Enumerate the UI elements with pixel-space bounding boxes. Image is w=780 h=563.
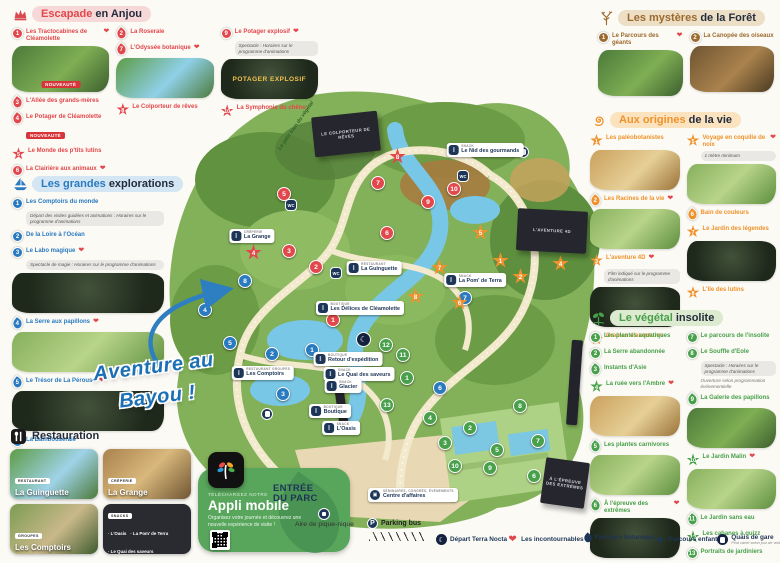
star-icon: ★ — [655, 534, 666, 545]
map-marker-red-2: 2 — [309, 260, 323, 274]
venue-icon: ∥ — [324, 423, 334, 433]
map-marker-green-2: 2 — [463, 421, 477, 435]
photo-thumbnail — [687, 469, 777, 509]
legend-column: 1Les Tractocabines de Cléamolette❤NOUVEA… — [12, 27, 109, 180]
venue-name: L'Oasis — [337, 427, 356, 433]
title-accent: Aux origines — [619, 114, 686, 126]
photo-thumbnail — [590, 150, 680, 190]
legend-column: 7Le parcours de l'insolite8Le Souffle d'… — [687, 331, 777, 563]
card-badge: GROUPES — [15, 533, 42, 539]
map-marker-orange-5: 5 — [472, 224, 489, 241]
venue-icon: ∥ — [231, 231, 241, 241]
restroom-icon: WC — [330, 267, 342, 279]
heart-icon: ❤ — [749, 452, 755, 460]
legend-entry-sub: Peut varier selon jour de visite — [731, 541, 780, 545]
section-title: Les grandesexplorations — [32, 176, 183, 192]
heart-icon: ❤ — [667, 194, 673, 202]
title-rest: explorations — [109, 178, 174, 190]
circle-marker: 2 — [12, 231, 23, 242]
leaf-marker: 5 — [588, 439, 603, 454]
restaurant-name: Les Comptoirs — [15, 543, 71, 552]
restaurant-card: SNACKS· L'Oasis· La Pom' de Terra· Le Qu… — [103, 504, 191, 554]
legend-item: 2La Canopée des oiseaux — [690, 31, 775, 92]
legend-item: 2Les Racines de la vie❤ — [590, 194, 680, 249]
legend-item-label: Le Potager de Cléamolette — [26, 112, 101, 121]
business-name: Centre d'affaires — [383, 494, 454, 500]
legend-item-label: Les paléobotanistes — [606, 133, 664, 142]
restaurant-card: CRÊPERIELa Grange — [103, 449, 191, 499]
legend-item-label: La Canopée des oiseaux — [704, 31, 774, 40]
circle-marker: 3 — [12, 247, 23, 258]
title-rest: en Anjou — [95, 8, 142, 20]
legend-column: 5Voyage en coquille de noix❤1 mètre mini… — [687, 133, 777, 303]
star-marker: 10 — [221, 104, 234, 117]
legend-item-label: À l'épreuve des extrêmes — [604, 499, 671, 515]
map-venue-label: ∥SNACKLe Nid des gourmands — [447, 143, 524, 157]
legend-item: 4La Serre aux papillons❤ — [12, 317, 164, 372]
heart-icon: ❤ — [507, 534, 518, 545]
new-badge: NOUVEAUTÉ — [41, 81, 80, 88]
legend-item: 8Le Colporteur de rêves — [116, 102, 213, 116]
star-marker: 5 — [687, 134, 700, 147]
section-title: Les mystèresde la Forêt — [618, 10, 765, 26]
title-accent: Escapade — [41, 8, 92, 20]
bus-parking-label: P Parking bus — [367, 518, 421, 529]
legend-item-label: Le Jardin des légendes — [703, 224, 769, 233]
photo-thumbnail: NOUVEAUTÉ — [12, 46, 109, 92]
venue-icon: ∥ — [311, 406, 321, 416]
legend-item: 5Voyage en coquille de noix❤1 mètre mini… — [687, 133, 777, 204]
legend-item-label: Portraits de jardiniers — [701, 547, 763, 556]
attraction-building: L'AVENTURE 4D — [516, 208, 588, 254]
title-rest: de la vie — [689, 114, 732, 126]
leaf-marker: 2 — [114, 26, 129, 41]
leaf-marker: 4 — [10, 111, 25, 126]
legend-item: 9La Galerie des papillons — [687, 393, 777, 448]
venue-name: Retour d'expédition — [328, 358, 378, 364]
legend-item: 7Le parcours de l'insolite — [687, 331, 777, 343]
snack-name: · L'Oasis — [108, 530, 126, 537]
venue-name: Le Nid des gourmands — [461, 149, 519, 155]
card-badge: SNACKS — [108, 513, 132, 519]
heart-icon: ❤ — [100, 164, 106, 172]
venue-icon: ∥ — [446, 275, 456, 285]
venue-icon: ∥ — [318, 303, 328, 313]
restroom-icon: WC — [457, 170, 469, 182]
map-venue-label: ∥RESTAURANTLa Guinguette — [347, 261, 402, 275]
title-accent: Les mystères — [627, 12, 697, 24]
legend-item: 2La Roseraie — [116, 27, 213, 39]
bare-tree-icon — [598, 10, 614, 26]
section-restauration: Restauration RESTAURANTLa GuinguetteCRÊP… — [10, 428, 194, 554]
picnic-area-label: Aire de pique-nique — [295, 508, 354, 528]
title-accent: Les grandes — [41, 178, 106, 190]
legend-entry-label: Les incontournables — [521, 536, 584, 543]
terra-nocta-icon: ☾ — [356, 332, 371, 347]
heart-icon: ❤ — [770, 133, 776, 141]
map-marker-red-6: 6 — [380, 226, 394, 240]
fork-knife-icon — [10, 428, 26, 444]
legend-item-label: Le Souffle d'Eole — [701, 347, 749, 356]
venue-icon: ∥ — [327, 381, 337, 391]
snack-name: · La Pom' de Terra — [130, 530, 168, 537]
legend-column: 2La Canopée des oiseaux — [690, 31, 775, 96]
legend-item: 6Bain de couleurs — [687, 208, 777, 220]
legend-item: 1Le Parcours des géants❤ — [598, 31, 683, 96]
map-marker-orange-1: 1 — [492, 252, 509, 269]
schedule-note: Spectacle : Horaires sur le programme d'… — [701, 361, 777, 376]
circle-marker: 7 — [687, 332, 698, 343]
schedule-note: 1 mètre minimum — [701, 151, 777, 161]
legend-entry-label: Parcours botanique — [595, 534, 655, 541]
map-marker-red-7: 7 — [371, 176, 385, 190]
business-center-label: ▣ SÉMINAIRES, CONGRÈS, ÉVÉNEMENTS Centre… — [368, 488, 458, 502]
legend-item: 8L'île des lutins — [687, 285, 777, 299]
venue-name: La Guinguette — [361, 267, 397, 273]
map-marker-green-11: 11 — [396, 348, 410, 362]
heart-icon: ❤ — [677, 31, 683, 39]
photo-thumbnail — [687, 164, 777, 204]
heart-icon: ❤ — [93, 317, 99, 325]
venue-icon: ∥ — [326, 369, 336, 379]
circle-marker: 8 — [687, 348, 698, 359]
legend-item-label: Le Monde des p'tits lutins — [28, 146, 101, 155]
app-kicker: TÉLÉCHARGEZ NOTRE — [208, 492, 268, 497]
legend-item: 9Le Potager explosif❤Spectacle : Horaire… — [221, 27, 318, 99]
attraction-building: LE COLPORTEUR DE RÊVES — [311, 111, 381, 158]
venue-name: La Pom' de Terra — [459, 279, 502, 285]
train-station-icon — [261, 408, 273, 420]
map-marker-blue-8: 8 — [238, 274, 252, 288]
map-marker-blue-5: 5 — [223, 336, 237, 350]
venue-name: Le Quai des saveurs — [338, 373, 390, 379]
legend-entry-label: Parcours enfant — [669, 536, 718, 543]
legend-item: 1Les Comptoirs du mondeDépart des visite… — [12, 197, 164, 226]
legend-item: 7Le Jardin des légendes — [687, 224, 777, 281]
legend-item: 5Les plantes carnivores — [590, 440, 680, 495]
legend-item-label: La Galerie des papillons — [701, 393, 770, 402]
map-venue-label: ∥BOUTIQUERetour d'expédition — [314, 352, 383, 366]
heart-icon: ❤ — [103, 27, 109, 35]
star-marker: 1 — [590, 134, 603, 147]
title-accent: Le végétal — [619, 312, 673, 324]
snack-name: · Le Quai des saveurs — [108, 548, 153, 554]
venue-name: La Grange — [244, 235, 271, 241]
circle-marker: 1 — [12, 198, 23, 209]
leaf-marker: 6 — [588, 498, 603, 513]
legend-item-label: Le parcours de l'insolite — [701, 331, 770, 340]
legend-item: 3Instants d'Asie — [590, 363, 680, 375]
legend-item-label: La Symphonie du chêne — [237, 103, 306, 112]
leaf-marker: 4 — [10, 316, 25, 331]
card-badge: RESTAURANT — [15, 478, 50, 484]
legend-item-label: Le Colporteur de rêves — [132, 102, 197, 111]
leaf-marker: 5 — [10, 375, 25, 390]
legend-item-label: Le Potager explosif — [235, 27, 290, 36]
app-description: Organisez votre journée et découvrez une… — [208, 515, 308, 529]
photo-thumbnail: POTAGER EXPLOSIF — [221, 59, 318, 99]
map-marker-orange-4: 4 — [552, 255, 569, 272]
schedule-note: Départ des visites guidées et animations… — [26, 211, 164, 226]
section-title: Le végétalinsolite — [610, 310, 723, 326]
legend-item-label: Le Labo magique — [26, 246, 75, 255]
legend-item: 5Le Monde des p'tits lutins — [12, 146, 109, 160]
legend-item-label: Les plantes carnivores — [604, 440, 669, 449]
legend-item-label: Le Jardin Malin — [703, 452, 747, 461]
parking-text: Parking bus — [381, 520, 421, 527]
legend-item-label: L'Allée des grands-mères — [26, 96, 99, 105]
legend-item: 10Le Jardin Malin❤ — [687, 452, 777, 509]
restroom-icon: WC — [285, 199, 297, 211]
map-marker-green-1: 1 — [400, 371, 414, 385]
heart-icon: ❤ — [668, 379, 674, 387]
map-marker-green-13: 13 — [380, 398, 394, 412]
legend-item-label: La Serre aux papillons — [26, 317, 90, 326]
legend-item-label: Instants d'Asie — [604, 363, 646, 372]
venue-name: Boutique — [324, 410, 347, 416]
photo-thumbnail — [687, 408, 777, 448]
legend-item: 4Le Potager de CléamoletteNOUVEAUTÉ — [12, 112, 109, 142]
photo-thumbnail — [590, 209, 680, 249]
map-venue-label: ∥RESTAURANT GROUPESLes Comptoirs — [232, 366, 294, 380]
park-entrance-label: ENTRÉE DU PARC — [273, 484, 318, 504]
circle-marker: 13 — [687, 548, 698, 559]
legend-item: 1Les plantes aquatiques — [590, 331, 680, 343]
venue-icon: ∥ — [234, 368, 244, 378]
circle-marker: 1 — [590, 332, 601, 343]
star-marker: 7 — [687, 225, 700, 238]
heart-icon: ❤ — [293, 27, 299, 35]
photo-thumbnail — [12, 273, 164, 313]
entrance-line2: DU PARC — [273, 494, 318, 504]
map-marker-red-1: 1 — [326, 313, 340, 327]
map-marker-green-5: 5 — [490, 443, 504, 457]
legend-item-label: La Serre abandonnée — [604, 347, 665, 356]
schedule-note: Spectacle : Horaires sur le programme d'… — [235, 41, 318, 56]
sprout-icon — [590, 310, 606, 326]
map-venue-label: ∥BOUTIQUEBoutique — [309, 404, 351, 418]
crown-icon — [12, 6, 28, 22]
map-marker-blue-2: 2 — [265, 347, 279, 361]
section-title: Aux originesde la vie — [610, 112, 741, 128]
legend-item: 1Les paléobotanistes — [590, 133, 680, 190]
star-marker: 8 — [116, 103, 129, 116]
heart-icon: ❤ — [648, 253, 654, 261]
train-icon — [717, 534, 728, 545]
map-marker-green-6: 6 — [527, 469, 541, 483]
map-marker-orange-2: 2 — [512, 268, 529, 285]
legend-item-label: Les Tractocabines de Cléamolette — [26, 27, 100, 43]
legend-item-label: Le Jardin sans eau — [701, 513, 755, 522]
map-venue-label: ∥CRÊPERIELa Grange — [229, 229, 274, 243]
leaf-marker: 6 — [684, 207, 699, 222]
legend-item-label: Les Comptoirs du monde — [26, 197, 98, 206]
vegetal-items: 1Les plantes aquatiques2La Serre abandon… — [590, 331, 776, 563]
schedule-note: Film indiqué sur le programme d'animatio… — [604, 269, 680, 284]
restaurant-card: RESTAURANTLa Guinguette — [10, 449, 98, 499]
legend-item: 5Le Trésor de La Pérouse❤ — [12, 376, 164, 431]
legend-item-label: De la Loire à l'Océan — [26, 230, 85, 239]
restaurant-name: La Guinguette — [15, 488, 69, 497]
title-rest: insolite — [676, 312, 715, 324]
new-badge: NOUVEAUTÉ — [26, 132, 65, 139]
thumbnail-caption: POTAGER EXPLOSIF — [221, 59, 318, 99]
circle-marker: 1 — [598, 32, 609, 43]
map-venue-label: ∥SNACKGlacier — [325, 379, 362, 393]
legend-entry-moon: ☾Départ Terra Nocta — [436, 534, 507, 545]
heart-icon: ❤ — [99, 376, 105, 384]
sailboat-icon — [12, 176, 28, 192]
circle-marker: 2 — [590, 348, 601, 359]
map-marker-green-8: 8 — [513, 399, 527, 413]
terra-botanica-app-icon — [208, 452, 244, 488]
map-marker-green-3: 3 — [438, 436, 452, 450]
photo-thumbnail — [598, 50, 683, 96]
legend-entry-label: Départ Terra Nocta — [450, 536, 507, 543]
legend-entry-heart: ❤Les incontournables — [507, 534, 584, 545]
picnic-text: Aire de pique-nique — [295, 521, 354, 528]
moon-icon: ☾ — [436, 534, 447, 545]
star-marker: 4 — [590, 380, 603, 393]
legend-item-label: Les plantes aquatiques — [604, 331, 670, 340]
venue-icon: ∥ — [349, 263, 359, 273]
legend-entry-label: Quais de gare — [731, 534, 780, 541]
legend-item: 1Les Tractocabines de Cléamolette❤NOUVEA… — [12, 27, 109, 92]
heart-icon: ❤ — [194, 43, 200, 51]
map-marker-green-9: 9 — [483, 461, 497, 475]
title-rest: de la Forêt — [700, 12, 756, 24]
star-marker: 10 — [687, 453, 700, 466]
section-vegetal-insolite: Le végétalinsolite 1Les plantes aquatiqu… — [590, 310, 776, 563]
legend-column: 1Les plantes aquatiques2La Serre abandon… — [590, 331, 680, 562]
circle-marker: 6 — [12, 165, 23, 176]
leaf-marker: 11 — [684, 512, 699, 527]
map-marker-red-4: 4 — [245, 244, 262, 261]
picnic-icon — [318, 508, 330, 520]
photo-thumbnail — [590, 455, 680, 495]
section-title: Restauration — [30, 428, 108, 444]
leaf-marker: 3 — [588, 362, 603, 377]
legend-column: 9Le Potager explosif❤Spectacle : Horaire… — [221, 27, 318, 121]
photo-thumbnail — [12, 332, 164, 372]
star-marker: 5 — [12, 147, 25, 160]
legend-item: 2La Serre abandonnée — [590, 347, 680, 359]
leaf-marker: 9 — [684, 392, 699, 407]
legend-item-label: Voyage en coquille de noix — [703, 133, 768, 149]
legend-item-label: La Roseraie — [130, 27, 164, 36]
leaf-icon — [582, 532, 593, 543]
map-venue-label: ∥BOUTIQUELes Délices de Cléamolette — [316, 301, 404, 315]
legend-item-label: La Clairière aux animaux — [26, 164, 97, 173]
star-marker: 8 — [687, 286, 700, 299]
restaurant-card: GROUPESLes Comptoirs — [10, 504, 98, 554]
venue-name: Glacier — [339, 385, 357, 391]
map-marker-red-9: 9 — [421, 195, 435, 209]
venue-name: Les Comptoirs — [246, 372, 290, 378]
photo-thumbnail — [690, 46, 775, 92]
map-marker-orange-8: 8 — [407, 288, 424, 305]
legend-item-label: Le Trésor de La Pérouse — [26, 376, 96, 385]
restaurant-name: La Grange — [108, 488, 148, 497]
heart-icon: ❤ — [78, 246, 84, 254]
map-marker-green-12: 12 — [379, 338, 393, 352]
briefcase-icon: ▣ — [370, 490, 380, 500]
leaf-marker: 3 — [10, 95, 25, 110]
legend-item: 6La Clairière aux animaux❤ — [12, 164, 109, 176]
legend-item: 7L'Odyssée botanique❤ — [116, 43, 213, 98]
legend-item-label: L'Odyssée botanique — [130, 43, 190, 52]
map-marker-blue-3: 3 — [276, 387, 290, 401]
escapade-items: 1Les Tractocabines de Cléamolette❤NOUVEA… — [12, 27, 318, 180]
map-marker-green-10: 10 — [448, 459, 462, 473]
legend-column: 2La Roseraie7L'Odyssée botanique❤8Le Col… — [116, 27, 213, 120]
map-legend-bar: ☾Départ Terra Nocta❤Les incontournablesP… — [436, 534, 776, 545]
heart-icon: ❤ — [674, 499, 680, 507]
legend-entry-star: ★Parcours enfant — [655, 534, 718, 545]
legend-item: 2De la Loire à l'Océan — [12, 230, 164, 242]
photo-thumbnail — [12, 391, 164, 431]
circle-marker: 2 — [690, 32, 701, 43]
photo-thumbnail — [116, 58, 213, 98]
venue-name: Les Délices de Cléamolette — [330, 307, 400, 313]
schedule-note: Spectacle de magie : Horaires sur le pro… — [26, 260, 164, 270]
map-marker-green-4: 4 — [423, 411, 437, 425]
map-marker-red-3: 3 — [282, 244, 296, 258]
parking-icon: P — [367, 518, 378, 529]
qr-code — [210, 530, 230, 550]
parking-hatch-marks — [369, 532, 425, 541]
legend-item-label: Les Racines de la vie — [604, 194, 664, 203]
legend-entry-leaf: Parcours botanique — [584, 534, 655, 542]
circle-marker: 9 — [221, 28, 232, 39]
card-badge: CRÊPERIE — [108, 478, 136, 484]
section-mysteres-foret: Les mystèresde la Forêt 1Le Parcours des… — [598, 10, 774, 100]
legend-item-label: La ruée vers l'Ambre — [606, 379, 665, 388]
legend-item-label: Bain de couleurs — [701, 208, 749, 217]
map-venue-label: ∥SNACKL'Oasis — [322, 421, 360, 435]
attraction-building: À L'ÉPREUVE DES EXTRÊMES — [540, 457, 590, 509]
photo-thumbnail — [687, 241, 777, 281]
map-marker-blue-6: 6 — [433, 381, 447, 395]
foret-items: 1Le Parcours des géants❤2La Canopée des … — [598, 31, 774, 100]
leaf-marker: 7 — [114, 42, 129, 57]
restaurant-cards: RESTAURANTLa GuinguetteCRÊPERIELa Grange… — [10, 449, 194, 554]
legend-item: 6À l'épreuve des extrêmes❤ — [590, 499, 680, 558]
map-marker-red-8: 8 — [389, 148, 406, 165]
legend-item-label: L'aventure 4D — [606, 253, 645, 262]
legend-entry-train: Quais de garePeut varier selon jour de v… — [717, 534, 780, 545]
venue-icon: ∥ — [449, 145, 459, 155]
map-marker-blue-4: 4 — [198, 303, 212, 317]
legend-item: 11Le Jardin sans eau — [687, 513, 777, 525]
legend-column: 1Le Parcours des géants❤ — [598, 31, 683, 100]
legend-item-label: L'île des lutins — [703, 285, 744, 294]
venue-icon: ∥ — [316, 354, 326, 364]
star-marker: 3 — [590, 254, 603, 267]
map-marker-green-7: 7 — [531, 434, 545, 448]
legend-item: 3L'Allée des grands-mères — [12, 96, 109, 108]
legend-item: 3Le Labo magique❤Spectacle de magie : Ho… — [12, 246, 164, 313]
section-escapade-en-anjou: Escapadeen Anjou 1Les Tractocabines de C… — [12, 6, 318, 180]
legend-item: 8Le Souffle d'EoleSpectacle : Horaires s… — [687, 347, 777, 389]
ammonite-icon — [590, 112, 606, 128]
legend-item: 4La ruée vers l'Ambre❤ — [590, 379, 680, 436]
leaf-marker: 2 — [588, 193, 603, 208]
section-title: Escapadeen Anjou — [32, 6, 151, 22]
legend-item: 13Portraits de jardiniers — [687, 547, 777, 559]
map-venue-label: ∥SNACKLa Pom' de Terra — [444, 273, 506, 287]
opening-note: Ouverture selon programmation événementi… — [701, 378, 777, 389]
